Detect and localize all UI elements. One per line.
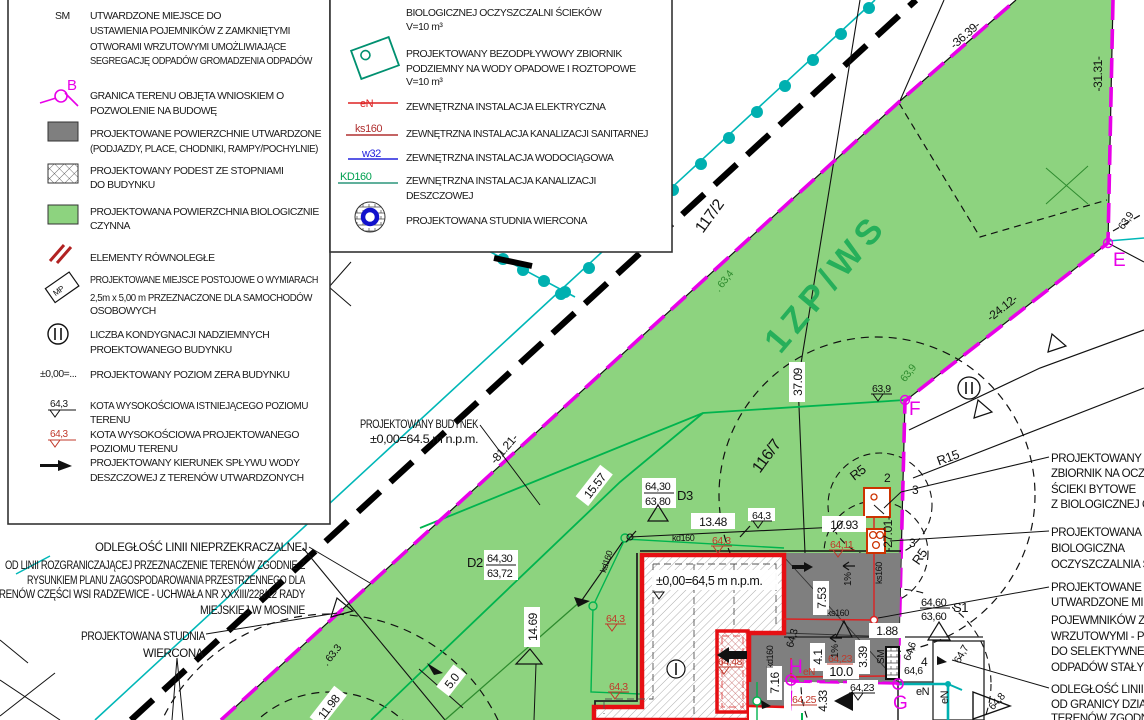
svg-text:64,25: 64,25 xyxy=(792,694,817,706)
svg-text:USTAWIENIA POJEMNIKÓW Z ZAMKNI: USTAWIENIA POJEMNIKÓW Z ZAMKNIĘTYMI xyxy=(90,24,290,37)
svg-text:63,72: 63,72 xyxy=(487,568,513,580)
svg-text:ks160: ks160 xyxy=(874,562,884,584)
svg-text:64,3: 64,3 xyxy=(50,429,69,440)
svg-text:64,30: 64,30 xyxy=(487,553,513,565)
svg-text:PROJEKTOWANA STUDNIA: PROJEKTOWANA STUDNIA xyxy=(81,629,206,643)
svg-text:OSOBOWYCH: OSOBOWYCH xyxy=(90,306,156,317)
svg-text:PROJEKTOWANE MIEJSCE POSTOJOWE: PROJEKTOWANE MIEJSCE POSTOJOWE O WYMIARA… xyxy=(90,275,318,286)
svg-text:±0,00=...: ±0,00=... xyxy=(40,369,77,380)
svg-text:kd160: kd160 xyxy=(672,533,695,543)
svg-text:kd160: kd160 xyxy=(765,645,775,668)
svg-text:OTWORAMI WRZUTOWYMI UMOŻLIWIAJ: OTWORAMI WRZUTOWYMI UMOŻLIWIAJĄCE xyxy=(90,40,286,53)
svg-text:64,30: 64,30 xyxy=(645,481,671,493)
svg-text:ZEWNĘTRZNA INSTALACJA WODOCIĄG: ZEWNĘTRZNA INSTALACJA WODOCIĄGOWA xyxy=(406,153,614,164)
svg-text:WRZUTOWYMI - POJEMNIKI: WRZUTOWYMI - POJEMNIKI xyxy=(1051,631,1144,643)
svg-text:ŚCIEKI BYTOWE: ŚCIEKI BYTOWE xyxy=(1051,483,1136,496)
svg-text:±0,00=64,5 m n.p.m.: ±0,00=64,5 m n.p.m. xyxy=(656,574,762,588)
svg-text:eN: eN xyxy=(939,690,951,704)
svg-text:7.16: 7.16 xyxy=(768,671,782,693)
svg-text:3: 3 xyxy=(912,483,919,497)
svg-text:UTWARDZONE MIEJSCE: UTWARDZONE MIEJSCE xyxy=(1051,597,1144,609)
svg-text:64,3: 64,3 xyxy=(50,399,69,410)
svg-text:TERENU: TERENU xyxy=(90,415,130,426)
svg-text:ELEMENTY RÓWNOLEGŁE: ELEMENTY RÓWNOLEGŁE xyxy=(90,251,215,264)
svg-text:V=10 m³: V=10 m³ xyxy=(406,77,443,88)
svg-text:14.69: 14.69 xyxy=(526,612,540,641)
svg-text:ODLEGŁOŚĆ LINII NIEPRZEKRACZAL: ODLEGŁOŚĆ LINII NIEPRZEKRACZALNEJ xyxy=(1051,683,1144,696)
svg-text:OD GRANICY DZIAŁKI/TERENÓW: OD GRANICY DZIAŁKI/TERENÓW xyxy=(1051,698,1144,711)
svg-text:PROJEKTOWANY BUDYNEK: PROJEKTOWANY BUDYNEK xyxy=(360,417,478,431)
svg-text:64,3: 64,3 xyxy=(752,510,771,522)
svg-text:eN: eN xyxy=(803,667,815,678)
svg-text:DESZCZOWEJ Z TERENÓW UTWARDZON: DESZCZOWEJ Z TERENÓW UTWARDZONYCH xyxy=(90,471,304,484)
svg-text:OCZYSZCZALNIA ŚCIEKÓW: OCZYSZCZALNIA ŚCIEKÓW xyxy=(1051,558,1144,571)
svg-text:64,3: 64,3 xyxy=(606,613,625,625)
svg-text:RYSUNKIEM PLANU ZAGOSPODAROWAN: RYSUNKIEM PLANU ZAGOSPODAROWANIA PRZESTR… xyxy=(27,573,306,587)
svg-text:CZYNNA: CZYNNA xyxy=(90,221,131,232)
svg-text:7.53: 7.53 xyxy=(815,586,829,608)
svg-text:POZWOLENIE NA BUDOWĘ: POZWOLENIE NA BUDOWĘ xyxy=(90,106,217,117)
svg-text:H: H xyxy=(789,657,802,678)
svg-text:TERENÓW CZĘŚCI WSI RADZEWICE -: TERENÓW CZĘŚCI WSI RADZEWICE - UCHWAŁA N… xyxy=(0,586,305,601)
svg-text:Z BIOLOGICZNEJ OCZYSZCZALNI: Z BIOLOGICZNEJ OCZYSZCZALNI xyxy=(1051,499,1144,511)
svg-text:2,5m x 5,00 m PRZEZNACZONE DLA: 2,5m x 5,00 m PRZEZNACZONE DLA SAMOCHODÓ… xyxy=(90,291,313,304)
svg-text:-27.01-: -27.01- xyxy=(881,516,895,551)
svg-text:PROJEKTOWANA STUDNIA WIERCONA: PROJEKTOWANA STUDNIA WIERCONA xyxy=(406,216,587,227)
svg-text:ks160: ks160 xyxy=(827,608,849,618)
svg-text:eN: eN xyxy=(360,98,374,110)
svg-text:F: F xyxy=(909,399,920,420)
svg-text:4.33: 4.33 xyxy=(816,689,830,711)
svg-text:ZBIORNIK NA OCZYSZCZONE: ZBIORNIK NA OCZYSZCZONE xyxy=(1051,468,1144,480)
svg-text:KOTA WYSOKOŚCIOWA ISTNIEJĄCEGO: KOTA WYSOKOŚCIOWA ISTNIEJĄCEGO POZIOMU xyxy=(90,399,308,412)
svg-text:4: 4 xyxy=(921,655,928,669)
svg-text:WIERCONA: WIERCONA xyxy=(143,646,204,660)
svg-text:1%: 1% xyxy=(830,644,841,658)
svg-text:GRANICA TERENU OBJĘTA WNIOSKIE: GRANICA TERENU OBJĘTA WNIOSKIEM O xyxy=(90,91,284,102)
svg-text:-31.31-: -31.31- xyxy=(1091,56,1105,91)
svg-text:KOTA WYSOKOŚCIOWA PROJEKTOWANE: KOTA WYSOKOŚCIOWA PROJEKTOWANEGO xyxy=(90,428,299,441)
svg-text:OD LINII ROZGRANICZAJĄCEJ PRZE: OD LINII ROZGRANICZAJĄCEJ PRZEZNACZENIE … xyxy=(5,557,306,572)
svg-text:(PODJAZDY, PLACE, CHODNIKI, RA: (PODJAZDY, PLACE, CHODNIKI, RAMPY/POCHYL… xyxy=(90,144,318,155)
svg-text:PROJEKTOWANE POWIERZCHNIE UTWA: PROJEKTOWANE POWIERZCHNIE UTWARDZONE xyxy=(90,129,322,140)
svg-text:POJEWMNIKÓW Z ZAMKNIĘTYMI: POJEWMNIKÓW Z ZAMKNIĘTYMI xyxy=(1051,614,1144,627)
svg-text:PROJEKTOWANY POZIOM ZERA BUDYN: PROJEKTOWANY POZIOM ZERA BUDYNKU xyxy=(90,370,290,381)
svg-text:ZEWNĘTRZNA INSTALACJA KANALIZA: ZEWNĘTRZNA INSTALACJA KANALIZACJI SANITA… xyxy=(406,129,648,140)
svg-text:1.88: 1.88 xyxy=(876,624,898,638)
svg-text:UTWARDZONE MIEJSCE DO: UTWARDZONE MIEJSCE DO xyxy=(90,11,221,22)
svg-text:64,11: 64,11 xyxy=(830,539,854,551)
svg-text:DO BUDYNKU: DO BUDYNKU xyxy=(90,180,155,191)
svg-text:ZEWNĘTRZNA INSTALACJA ELEKTRYC: ZEWNĘTRZNA INSTALACJA ELEKTRYCZNA xyxy=(406,102,606,113)
svg-text:SEGREGACJĘ ODPADÓW GROMADZENIA: SEGREGACJĘ ODPADÓW GROMADZENIA ODPADÓW xyxy=(90,54,313,67)
svg-text:63,60: 63,60 xyxy=(921,611,947,623)
svg-text:BIOLOGICZNA: BIOLOGICZNA xyxy=(1051,543,1125,555)
svg-text:PROJEKTOWANA POWIERZCHNIA BIOL: PROJEKTOWANA POWIERZCHNIA BIOLOGICZNIE xyxy=(90,207,319,218)
svg-text:V=10 m³: V=10 m³ xyxy=(406,22,443,33)
svg-text:4.1: 4.1 xyxy=(811,649,825,665)
svg-text:PROJEKTOWANY PODEST ZE STOPNIA: PROJEKTOWANY PODEST ZE STOPNIAMI xyxy=(90,166,283,177)
svg-text:PROEKTOWANEGO BUDYNKU: PROEKTOWANEGO BUDYNKU xyxy=(90,345,232,356)
svg-text:LICZBA KONDYGNACJI NADZIEMNYCH: LICZBA KONDYGNACJI NADZIEMNYCH xyxy=(90,330,269,341)
svg-text:PROJEKTOWANY BEZODPŁYWOWY: PROJEKTOWANY BEZODPŁYWOWY xyxy=(1051,453,1144,465)
svg-text:eN: eN xyxy=(916,686,930,698)
svg-text:13.48: 13.48 xyxy=(699,515,728,529)
svg-text:DO SELEKTYWNEGO GROMADZENIA: DO SELEKTYWNEGO GROMADZENIA xyxy=(1051,646,1144,658)
svg-text:37.09: 37.09 xyxy=(791,367,805,396)
svg-text:SM: SM xyxy=(55,11,70,22)
svg-text:3: 3 xyxy=(909,536,916,550)
svg-text:KD160: KD160 xyxy=(340,171,372,183)
svg-text:ZEWNĘTRZNA INSTALACJA KANALIZA: ZEWNĘTRZNA INSTALACJA KANALIZACJI xyxy=(406,176,596,187)
svg-text:MIEJSKIEJ W MOSINIE: MIEJSKIEJ W MOSINIE xyxy=(200,603,305,617)
svg-text:G: G xyxy=(893,693,907,714)
svg-text:64,3: 64,3 xyxy=(712,535,731,547)
svg-text:64,3: 64,3 xyxy=(609,681,628,693)
svg-text:PODZIEMNY NA WODY OPADOWE I RO: PODZIEMNY NA WODY OPADOWE I ROZTOPOWE xyxy=(406,64,636,75)
svg-text:PROJEKTOWANY BEZODPŁYWOWY ZBIO: PROJEKTOWANY BEZODPŁYWOWY ZBIORNIK xyxy=(406,49,622,60)
svg-text:B: B xyxy=(67,77,77,94)
svg-text:10.0: 10.0 xyxy=(829,664,853,679)
svg-text:±0,00=64.5 m n.p.m.: ±0,00=64.5 m n.p.m. xyxy=(370,432,478,446)
svg-text:TERENÓW ZGODNIE Z: TERENÓW ZGODNIE Z xyxy=(1051,712,1144,720)
svg-text:SM: SM xyxy=(876,650,887,664)
svg-text:D3: D3 xyxy=(677,488,693,503)
svg-text:64,60: 64,60 xyxy=(921,597,947,609)
svg-text:DESZCZOWEJ: DESZCZOWEJ xyxy=(406,191,473,202)
svg-text:w32: w32 xyxy=(361,148,381,160)
svg-text:1%: 1% xyxy=(843,572,854,586)
svg-text:2: 2 xyxy=(884,471,891,485)
svg-text:PROJEKTOWANY KIERUNEK SPŁYWU W: PROJEKTOWANY KIERUNEK SPŁYWU WODY xyxy=(90,458,300,469)
svg-text:E: E xyxy=(1113,250,1125,271)
svg-text:63,9: 63,9 xyxy=(872,383,891,395)
svg-text:BIOLOGICZNEJ OCZYSZCZALNI ŚCIE: BIOLOGICZNEJ OCZYSZCZALNI ŚCIEKÓW xyxy=(406,6,602,19)
svg-text:ks160: ks160 xyxy=(355,123,382,135)
svg-text:ODPADÓW STAŁYCH: ODPADÓW STAŁYCH xyxy=(1051,661,1144,674)
svg-text:D2: D2 xyxy=(467,555,483,570)
svg-text:64,23: 64,23 xyxy=(850,682,875,694)
svg-text:PROJEKTOWANA: PROJEKTOWANA xyxy=(1051,527,1142,539)
svg-text:POZIOMU TERENU: POZIOMU TERENU xyxy=(90,444,178,455)
svg-text:PROJEKTOWANE: PROJEKTOWANE xyxy=(1051,582,1142,594)
svg-text:ODLEGŁOŚĆ LINII NIEPRZEKRACZAL: ODLEGŁOŚĆ LINII NIEPRZEKRACZALNEJ xyxy=(95,539,307,554)
